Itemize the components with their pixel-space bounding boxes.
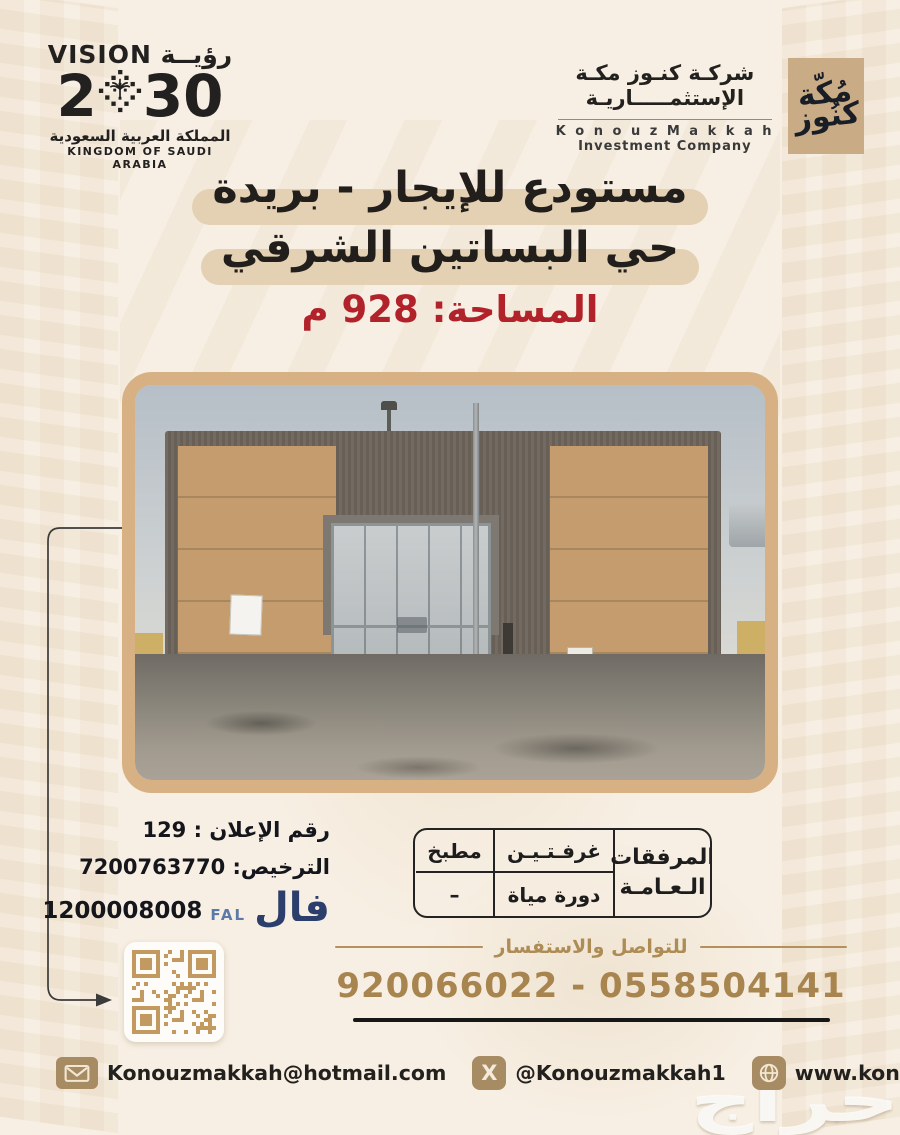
x-twitter-icon: X	[472, 1056, 506, 1090]
phone-numbers[interactable]: 920066022 - 0558504141	[335, 966, 847, 1006]
saudi-palm-emblem-icon	[97, 67, 143, 125]
fal-number: 1200008008	[42, 898, 202, 924]
property-photo-frame	[122, 372, 778, 793]
photo-building-right-panel	[550, 446, 708, 681]
company-name-ar-2: الإستثمـــــاريـة	[556, 83, 774, 115]
company-name-block: شركـة كنـوز مكـة الإستثمـــــاريـة K o n…	[556, 58, 774, 154]
fal-license-row: فال FAL 1200008008	[55, 892, 330, 924]
vision-year: 2	[40, 67, 240, 125]
facility-rooms: غرفـتـيـن	[493, 830, 613, 873]
website-url[interactable]: www.konouzmakkah.com	[795, 1061, 900, 1085]
contact-block: للتواصل والاستفسار 920066022 - 055850414…	[335, 936, 847, 1022]
area-text: المساحة: 928 م	[0, 288, 900, 331]
vision-year-2: 2	[56, 67, 96, 125]
email-icon	[56, 1057, 98, 1089]
facilities-table: المرفقات الـعـامـة غرفـتـيـن مطبخ دورة م…	[413, 828, 712, 918]
website-globe-icon	[752, 1056, 786, 1090]
fal-logo-latin: FAL	[210, 906, 246, 924]
ad-info-block: رقم الإعلان : 129 الترخيص: 7200763770 فا…	[55, 818, 330, 924]
photo-lamp-head	[381, 401, 397, 410]
company-name-en-1: K o n o u z M a k k a h	[556, 124, 774, 139]
footer-bar: Konouzmakkah@hotmail.com X @Konouzmakkah…	[56, 1056, 890, 1090]
fal-logo-arabic: فال	[254, 892, 330, 924]
vision-2030-logo: رؤيــة VISION 2	[40, 40, 240, 171]
company-mark-text: مُكّة كنُوز	[791, 79, 861, 132]
vision-year-30: 30	[143, 67, 224, 125]
contact-heading-row: للتواصل والاستفسار	[335, 936, 847, 958]
facility-empty: –	[416, 873, 493, 916]
header: رؤيــة VISION 2	[40, 40, 864, 171]
vision-country-ar: المملكة العربية السعودية	[40, 127, 240, 145]
photo-lamp-pole	[387, 407, 391, 433]
warehouse-photo	[135, 385, 765, 780]
qr-code[interactable]	[124, 942, 224, 1042]
qr-code-pattern	[132, 950, 216, 1034]
x-handle[interactable]: @Konouzmakkah1	[515, 1061, 725, 1085]
title-line-1: مستودع للإيجار - بريدة	[198, 158, 701, 218]
photo-building-left-panel	[178, 446, 336, 681]
photo-keypad	[503, 623, 513, 657]
company-calligraphy-mark: مُكّة كنُوز	[788, 58, 864, 154]
company-name-en-2: Investment Company	[556, 139, 774, 154]
photo-door-handle	[397, 617, 427, 633]
company-logo: شركـة كنـوز مكـة الإستثمـــــاريـة K o n…	[556, 40, 864, 171]
title-line-2: حي البساتين الشرقي	[207, 218, 693, 278]
contact-rule-right	[700, 946, 848, 948]
photo-ac-duct	[729, 503, 765, 547]
facility-bathroom: دورة مياة	[493, 873, 613, 916]
photo-utility-pole	[473, 403, 479, 681]
photo-ground	[135, 654, 765, 780]
photo-white-sign	[229, 594, 262, 635]
company-divider	[558, 119, 772, 120]
contact-rule-left	[335, 946, 483, 948]
ad-number: رقم الإعلان : 129	[55, 818, 330, 842]
email-address[interactable]: Konouzmakkah@hotmail.com	[107, 1061, 446, 1085]
facility-kitchen: مطبخ	[416, 830, 493, 873]
listing-title: مستودع للإيجار - بريدة حي البساتين الشرق…	[0, 158, 900, 331]
contact-heading: للتواصل والاستفسار	[495, 936, 688, 958]
divider-line	[353, 1018, 830, 1022]
facilities-header: المرفقات الـعـامـة	[613, 830, 710, 916]
license-number: الترخيص: 7200763770	[55, 855, 330, 879]
